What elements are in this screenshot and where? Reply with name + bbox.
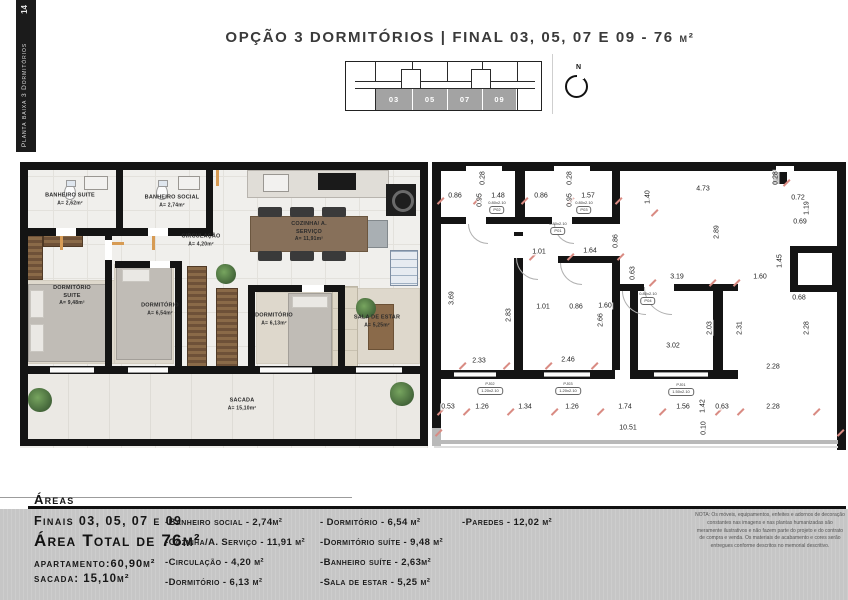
door-opening	[148, 228, 168, 236]
key-plan-unit-cell: 05	[413, 89, 447, 110]
chair	[322, 251, 346, 261]
opening-size: PJ01	[676, 382, 685, 387]
key-plan-unit-cell: 07	[448, 89, 482, 110]
dimension-label: 10.51	[618, 425, 638, 432]
sidebar-label: Planta baixa 3 Dormitórios	[21, 43, 28, 147]
dimension-label: 1.01	[531, 249, 547, 256]
door-leaf	[152, 236, 155, 250]
dimension-tick	[463, 408, 470, 415]
dimension-tick	[459, 362, 466, 369]
dimension-tick	[503, 362, 510, 369]
dimension-label: 0.28	[480, 170, 487, 186]
balcony-door	[356, 367, 402, 373]
chair	[290, 251, 314, 261]
dimension-tick	[813, 408, 820, 415]
dimension-label: 0.28	[773, 170, 780, 186]
unit-number: 09	[494, 95, 504, 104]
pillow	[292, 296, 328, 308]
key-plan-core	[471, 69, 491, 89]
areas-heading: Áreas	[34, 492, 74, 507]
balcony-slab-edge	[434, 446, 838, 448]
dimension-label: 3.02	[665, 343, 681, 350]
header-divider	[552, 54, 553, 114]
door-swing-arc	[560, 263, 582, 285]
room-name: CIRCULAÇÃO	[182, 234, 221, 240]
dimension-label: 0.10	[701, 420, 708, 436]
dimension-label: 1.40	[645, 189, 652, 205]
bathroom-sink	[178, 176, 200, 190]
opening-code: 1.50x2.10	[668, 388, 694, 396]
wall-segment	[338, 285, 345, 373]
balcony-slab-edge	[434, 440, 838, 444]
opening-size: PJ03	[563, 381, 572, 386]
wardrobe	[187, 266, 207, 370]
areas-column-3: -Paredes - 12,02 m²	[462, 517, 552, 537]
wall-segment	[612, 256, 620, 370]
room-area: A= 6,54m²	[141, 310, 179, 317]
key-plan-line	[375, 61, 376, 82]
dimension-label: 0.63	[714, 404, 730, 411]
opening-code: P03	[576, 206, 591, 214]
dimension-label: 1.57	[580, 193, 596, 200]
opening-code: 1.20x2.10	[477, 387, 503, 395]
door-opening	[56, 228, 76, 236]
unit-number: 05	[425, 95, 435, 104]
dimension-label: 0.86	[568, 304, 584, 311]
opening-size: 0.80x2.10	[549, 221, 567, 226]
opening-tag: 0.80x2.10P03	[575, 200, 593, 214]
dimension-tick	[651, 209, 658, 216]
room-name: DORMITÓRIO	[141, 303, 179, 309]
window	[454, 372, 496, 377]
pillow	[122, 269, 150, 282]
balcony-area-line: sacada: 15,10m²	[34, 573, 130, 585]
dimension-tick	[545, 362, 552, 369]
page-number: 14	[20, 5, 29, 14]
laundry-shelf	[390, 250, 418, 286]
plant	[216, 264, 236, 284]
room-area: A= 2,62m²	[45, 200, 95, 207]
opening-tag: 0.80x2.10P02	[488, 200, 506, 214]
dimension-label: 1.34	[517, 404, 533, 411]
door-opening	[302, 285, 324, 292]
dimension-label: 3.69	[449, 290, 456, 306]
window	[50, 367, 94, 373]
door-leaf	[112, 242, 124, 245]
chair	[290, 207, 314, 217]
wall-segment	[612, 162, 620, 224]
room-area: A= 5,25m²	[354, 322, 400, 329]
room-area: A= 6,13m²	[255, 320, 293, 327]
plant	[28, 388, 52, 412]
room-label: DORMITÓRIOA= 6,54m²	[141, 303, 179, 318]
opening-code: 1.20x2.10	[555, 387, 581, 395]
dimension-label: 2.66	[598, 312, 605, 328]
wall-segment	[22, 439, 426, 446]
key-plan-core	[401, 69, 421, 89]
dimension-tick	[659, 408, 666, 415]
key-plan-line	[447, 61, 448, 82]
opening-tag: PJ021.20x2.10	[477, 381, 503, 395]
building-key-plan: 03050709	[345, 58, 550, 116]
dimension-label: 0.86	[533, 193, 549, 200]
dimension-label: 0.69	[792, 219, 808, 226]
area-item: - Dormitório - 6,54 m²	[320, 517, 443, 528]
room-label: COZINHA/ A. SERVIÇOA= 11,91m²	[283, 221, 335, 243]
key-plan-unit-cell: 09	[483, 89, 516, 110]
apartment-area-line: apartamento:60,90m²	[34, 558, 155, 570]
opening-code: P02	[489, 206, 504, 214]
bathroom-sink	[84, 176, 108, 190]
dimension-tick	[617, 253, 624, 260]
room-label: BANHEIRO SOCIALA= 2,74m²	[145, 195, 200, 210]
window	[128, 367, 168, 373]
cooktop	[318, 173, 356, 190]
wall-segment	[20, 162, 28, 446]
plant	[390, 382, 414, 406]
room-label: DORMITÓRIO SUITEA= 9,48m²	[46, 285, 98, 307]
window	[544, 372, 590, 377]
finals-line: Finais 03, 05, 07 e 09	[34, 514, 182, 528]
room-name: DORMITÓRIO SUITE	[53, 285, 91, 299]
room-name: BANHEIRO SOCIAL	[145, 195, 200, 201]
wall-segment	[22, 162, 426, 170]
dimension-label: 0.53	[440, 404, 456, 411]
area-item: -Circulação - 4,20 m²	[165, 557, 305, 568]
pillow	[30, 324, 44, 352]
technical-floor-plan: 0.860.280.951.480.860.280.951.571.404.73…	[432, 160, 846, 455]
dimension-label: 1.60	[597, 303, 613, 310]
north-label: N	[576, 64, 581, 71]
area-item: -Sala de estar - 5,25 m²	[320, 577, 443, 588]
opening-code: P01	[550, 227, 565, 235]
dimension-label: 0.95	[567, 192, 574, 208]
dimension-label: 2.03	[707, 320, 714, 336]
sidebar-tab: 14 Planta baixa 3 Dormitórios	[16, 0, 36, 152]
window	[654, 372, 708, 377]
area-item: -Cozinha/A. Serviço - 11,91 m²	[165, 537, 305, 548]
door-opening	[105, 240, 112, 260]
dimension-label: 1.56	[675, 404, 691, 411]
room-name: SALA DE ESTAR	[354, 315, 400, 321]
wall-segment	[420, 162, 428, 446]
room-name: DORMITÓRIO	[255, 313, 293, 319]
shaft-opening	[798, 253, 832, 285]
dimension-tick	[507, 408, 514, 415]
dimension-label: 0.86	[613, 233, 620, 249]
wall-segment	[837, 162, 846, 450]
room-label: SALA DE ESTARA= 5,25m²	[354, 315, 400, 330]
door-opening	[150, 261, 170, 268]
opening-size: 0.80x2.10	[488, 200, 506, 205]
dimension-label: 2.33	[471, 358, 487, 365]
dimension-label: 2.83	[506, 307, 513, 323]
opening-size: 0.80x2.10	[639, 291, 657, 296]
dimension-tick	[737, 408, 744, 415]
room-label: CIRCULAÇÃOA= 4,20m²	[182, 234, 221, 249]
disclaimer-note: NOTA: Os móveis, equipamentos, enfeites …	[694, 512, 846, 551]
chair	[258, 207, 282, 217]
opening-tag: 0.80x2.10P01	[549, 221, 567, 235]
wall-segment	[116, 162, 123, 236]
room-area: A= 4,20m²	[182, 241, 221, 248]
dimension-label: 2.46	[560, 357, 576, 364]
opening-tag: PJ011.50x2.10	[668, 382, 694, 396]
dimension-tick	[597, 408, 604, 415]
door-swing-arc	[468, 224, 488, 244]
dimension-tick	[551, 408, 558, 415]
area-item: -Banheiro social - 2,74m²	[165, 517, 305, 528]
area-item: -Dormitório - 6,13 m²	[165, 577, 305, 588]
room-label: BANHEIRO SUITEA= 2,62m²	[45, 193, 95, 208]
wardrobe	[216, 288, 238, 368]
dimension-label: 2.28	[765, 404, 781, 411]
pillow	[30, 290, 44, 318]
dimension-label: 1.48	[490, 193, 506, 200]
washing-machine	[386, 184, 416, 216]
area-item: -Dormitório suíte - 9,48 m²	[320, 537, 443, 548]
room-name: SACADA	[230, 398, 255, 404]
kitchen-sink	[263, 174, 289, 192]
window	[260, 367, 312, 373]
door-leaf	[60, 236, 63, 250]
opening-tag: PJ031.20x2.10	[555, 381, 581, 395]
dimension-label: 0.28	[567, 170, 574, 186]
dimension-label: 1.19	[804, 200, 811, 216]
north-notch	[577, 72, 584, 79]
key-plan-corridor-top	[355, 81, 535, 82]
areas-column-1: -Banheiro social - 2,74m²-Cozinha/A. Ser…	[165, 517, 305, 597]
wall-segment	[515, 162, 525, 224]
door-opening	[466, 217, 486, 224]
dimension-label: 0.63	[630, 265, 637, 281]
dimension-label: 1.26	[564, 404, 580, 411]
dimension-label: 2.28	[804, 320, 811, 336]
page-title: OPÇÃO 3 DORMITÓRIOS | FINAL 03, 05, 07 E…	[160, 29, 760, 46]
chair	[258, 251, 282, 261]
room-area: A= 9,48m²	[46, 300, 98, 307]
dimension-tick	[591, 362, 598, 369]
wall-segment	[248, 285, 345, 292]
dimension-label: 0.95	[477, 192, 484, 208]
unit-number: 07	[460, 95, 470, 104]
dimension-label: 0.68	[791, 295, 807, 302]
opening-code: P04	[640, 297, 655, 305]
page-title-text: OPÇÃO 3 DORMITÓRIOS | FINAL 03, 05, 07 E…	[225, 29, 679, 46]
room-label: SACADAA= 15,10m²	[228, 398, 257, 413]
dimension-label: 0.86	[447, 193, 463, 200]
wall-segment	[248, 285, 255, 373]
key-plan-line	[517, 89, 518, 110]
areas-underline	[28, 506, 846, 509]
key-plan-line	[517, 61, 518, 82]
wall-segment	[206, 162, 213, 236]
chair	[322, 207, 346, 217]
dimension-label: 2.31	[737, 320, 744, 336]
dimension-label: 1.45	[777, 253, 784, 269]
dimension-label: 2.89	[714, 224, 721, 240]
dimension-label: 1.60	[752, 274, 768, 281]
areas-column-2: - Dormitório - 6,54 m²-Dormitório suíte …	[320, 517, 443, 597]
dimension-label: 1.01	[535, 304, 551, 311]
furnished-floor-plan: BANHEIRO SUITEA= 2,62m²BANHEIRO SOCIALA=…	[20, 162, 428, 448]
dimension-label: 3.19	[669, 274, 685, 281]
entry-door-leaf	[216, 170, 219, 186]
area-item: -Paredes - 12,02 m²	[462, 517, 552, 528]
north-arrow: N	[563, 66, 593, 100]
unit-number: 03	[389, 95, 399, 104]
opening-tag: 0.80x2.10P04	[639, 291, 657, 305]
opening-size: PJ02	[485, 381, 494, 386]
opening-size: 0.80x2.10	[575, 200, 593, 205]
wall-segment	[713, 288, 723, 372]
door-opening	[514, 236, 523, 258]
key-plan-unit-cell: 03	[376, 89, 412, 110]
page-title-unit: m²	[680, 30, 695, 45]
dimension-label: 4.73	[695, 186, 711, 193]
dimension-label: 1.26	[474, 404, 490, 411]
dimension-label: 2.28	[765, 364, 781, 371]
balcony-floor	[28, 374, 422, 439]
area-item: -Banheiro suíte - 2,63m²	[320, 557, 443, 568]
room-area: A= 15,10m²	[228, 405, 257, 412]
dimension-label: 1.64	[582, 248, 598, 255]
room-label: DORMITÓRIOA= 6,13m²	[255, 313, 293, 328]
room-name: BANHEIRO SUITE	[45, 193, 95, 199]
dimension-label: 1.74	[617, 404, 633, 411]
room-area: A= 2,74m²	[145, 202, 200, 209]
room-name: COZINHA/ A. SERVIÇO	[291, 221, 327, 235]
room-area: A= 11,91m²	[283, 236, 335, 243]
dimension-label: 1.42	[700, 398, 707, 414]
